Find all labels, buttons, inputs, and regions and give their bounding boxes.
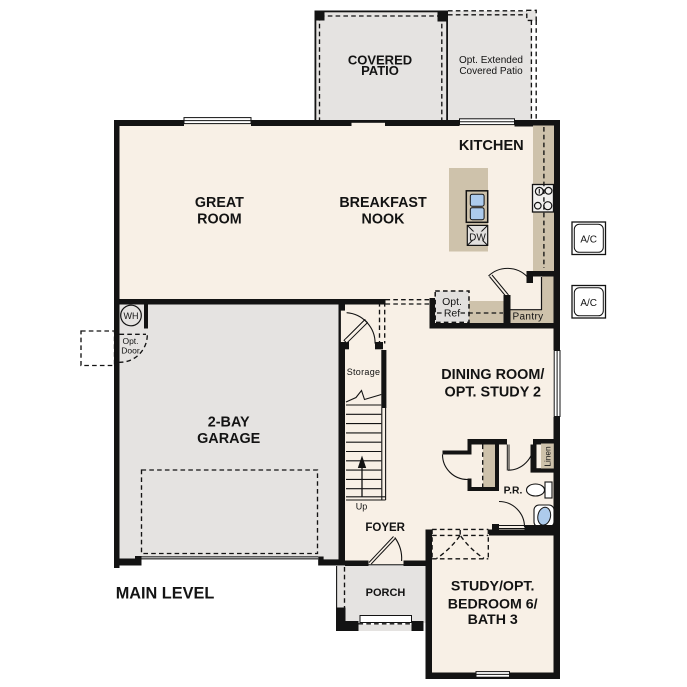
svg-text:STUDY/OPT.: STUDY/OPT. xyxy=(451,579,535,595)
svg-text:BREAKFAST: BREAKFAST xyxy=(339,195,427,211)
svg-text:Door: Door xyxy=(121,346,140,356)
svg-text:ROOM: ROOM xyxy=(197,211,241,227)
svg-text:BEDROOM 6/: BEDROOM 6/ xyxy=(448,597,538,613)
svg-text:A/C: A/C xyxy=(580,298,597,309)
svg-text:Linen: Linen xyxy=(543,446,553,467)
svg-text:Storage: Storage xyxy=(347,367,381,377)
svg-text:Pantry: Pantry xyxy=(512,312,543,323)
svg-text:BATH 3: BATH 3 xyxy=(468,612,518,628)
svg-text:DW: DW xyxy=(469,233,486,244)
svg-text:A/C: A/C xyxy=(580,235,597,246)
svg-text:Opt. Extended: Opt. Extended xyxy=(459,55,523,66)
svg-text:Opt.: Opt. xyxy=(442,296,462,308)
svg-text:FOYER: FOYER xyxy=(365,522,405,534)
svg-text:2-BAY: 2-BAY xyxy=(208,414,250,430)
svg-text:WH: WH xyxy=(124,311,139,321)
svg-text:PATIO: PATIO xyxy=(361,63,399,78)
svg-text:P.R.: P.R. xyxy=(504,485,523,496)
svg-text:DINING ROOM/: DINING ROOM/ xyxy=(441,367,544,383)
svg-text:Ref: Ref xyxy=(444,308,460,320)
svg-text:NOOK: NOOK xyxy=(362,211,406,227)
svg-text:KITCHEN: KITCHEN xyxy=(459,138,524,154)
svg-text:MAIN LEVEL: MAIN LEVEL xyxy=(116,585,215,603)
svg-text:Opt.: Opt. xyxy=(122,336,138,346)
svg-text:OPT. STUDY 2: OPT. STUDY 2 xyxy=(445,385,542,401)
svg-text:Up: Up xyxy=(356,501,368,511)
svg-text:Covered Patio: Covered Patio xyxy=(459,66,523,77)
svg-text:GREAT: GREAT xyxy=(195,195,244,211)
svg-text:GARAGE: GARAGE xyxy=(197,431,261,447)
svg-text:PORCH: PORCH xyxy=(366,587,406,599)
